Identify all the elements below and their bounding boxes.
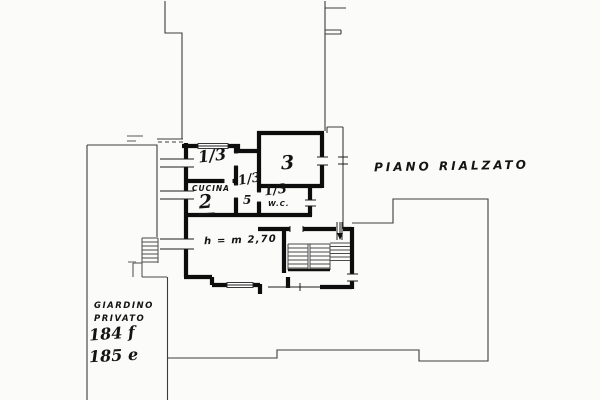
external-stair [133,238,167,277]
floor-plan-scan: PIANO RIALZATO GIARDINO PRIVATO 184 f 18… [0,0,600,400]
wc-label: W.C. [268,201,290,208]
scan-marks [127,136,143,262]
kitchen-room-number: 2 [196,192,215,215]
corridor-number: 5 [243,194,251,206]
plan-title: PIANO RIALZATO [374,159,529,174]
building-outline-upper [165,1,346,229]
room3-number: 3 [281,154,295,174]
garden-parcel-number-1: 184 f [88,324,135,343]
wc-fraction: 1/3 [263,182,287,198]
room-topleft-fraction: 1/3 [197,146,227,165]
garden-label-line1: GIARDINO [94,302,154,311]
garden-label-line2: PRIVATO [94,315,145,324]
internal-staircase [288,243,350,270]
corridor-fraction: 1/3 [237,171,262,188]
garden-parcel-number-2: 185 e [89,347,139,366]
